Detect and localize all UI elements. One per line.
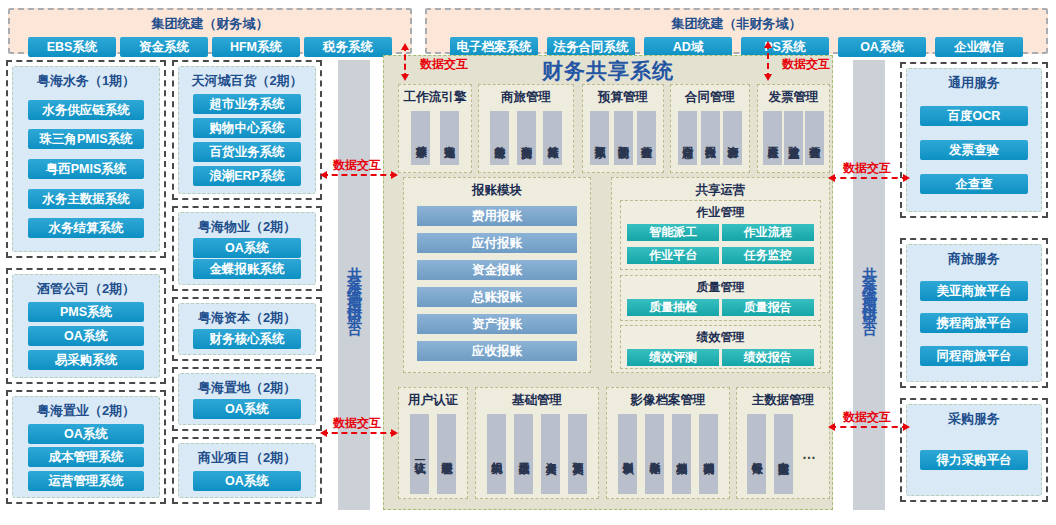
- operation-item: 质量报告: [722, 299, 814, 316]
- system-button: 成本管理系统: [28, 447, 145, 467]
- group-title: 商业项目（2期）: [198, 449, 296, 467]
- module-basic-mgmt: 基础管理 组织架构员工数据资金相关预算相关: [475, 387, 599, 499]
- module-title: 主数据管理: [737, 392, 829, 409]
- system-button: 美亚商旅平台: [920, 281, 1027, 301]
- group-hotel-company: 酒管公司（2期） PMS系统OA系统易采购系统: [6, 268, 166, 384]
- reimbursement-item: 应收报账: [417, 341, 577, 361]
- data-exchange-label: 数据交互: [782, 56, 830, 73]
- module-workflow-engine: 工作流引擎 待办事项审批通知: [398, 84, 472, 173]
- group-title: 采购服务: [948, 410, 1000, 428]
- group-yuehai-land: 粤海置地（2期） OA系统: [172, 367, 322, 431]
- system-button: 超市业务系统: [193, 94, 302, 114]
- system-button: OA系统: [28, 424, 145, 444]
- module-master-data-mgmt: 主数据管理 银行账号客商主数据…: [736, 387, 830, 499]
- group-teemall: 天河城百货（2期） 超市业务系统购物中心系统百货业务系统浪潮ERP系统: [172, 60, 322, 200]
- data-exchange-arrow-left-lower: [322, 432, 396, 434]
- subgroup-job-mgmt: 作业管理 智能派工作业流程作业平台任务监控: [620, 200, 821, 270]
- module-title: 工作流引擎: [399, 89, 471, 106]
- module-item: 影像识别: [618, 414, 637, 494]
- system-button: 得力采购平台: [920, 450, 1027, 470]
- system-button: 电子档案系统: [450, 37, 538, 57]
- module-items: 预算体系预算控制分析查询: [583, 106, 663, 172]
- system-button: 携程商旅平台: [920, 313, 1027, 333]
- group-title: 商旅服务: [948, 250, 1000, 268]
- module-item: 合同执行: [701, 111, 720, 165]
- interface-platform-bar-right: 共享系统通用接口平台: [853, 60, 885, 510]
- group-title: 酒管公司（2期）: [37, 280, 135, 298]
- system-button: 发票查验: [920, 140, 1027, 160]
- system-button: 粤西PMIS系统: [28, 159, 145, 179]
- module-contract-mgmt: 合同管理 合同信息合同执行查询分析: [670, 84, 750, 173]
- module-user-auth: 用户认证 统一认证权限管理: [398, 387, 468, 499]
- module-image-archive-mgmt: 影像档案管理 影像识别影像存储档案归档档案调阅: [606, 387, 730, 499]
- operation-item: 任务监控: [722, 247, 814, 264]
- group-inner: 商旅服务 美亚商旅平台携程商旅平台同程商旅平台: [906, 244, 1042, 382]
- system-list: PMS系统OA系统易采购系统: [13, 298, 159, 374]
- module-items: 待办事项审批通知: [399, 106, 471, 172]
- module-item: 分析查询: [637, 111, 656, 165]
- operation-item: 绩效报告: [722, 349, 814, 366]
- operation-item: 智能派工: [627, 224, 719, 241]
- interface-platform-bar-left: 共享系统通用接口平台: [338, 60, 370, 510]
- group-yuehai-pm: 粤海物业（2期） OA系统金蝶报账系统: [172, 206, 322, 291]
- data-exchange-label: 数据交互: [333, 157, 381, 174]
- system-button: HFM系统: [212, 37, 300, 57]
- system-list: 百度OCR发票查验企查查: [907, 92, 1041, 208]
- system-button: PMS系统: [28, 302, 145, 322]
- group-yuehai-water: 粤海水务（1期） 水务供应链系统珠三角PMIS系统粤西PMIS系统水务主数据系统…: [6, 60, 166, 258]
- group-commercial-project: 商业项目（2期） OA系统: [172, 437, 322, 504]
- module-item: 权限管理: [437, 414, 456, 494]
- module-item: 档案归档: [672, 414, 691, 494]
- module-title: 报账模块: [404, 182, 590, 199]
- system-button: EBS系统: [28, 37, 116, 57]
- module-travel-mgmt: 商旅管理 差旅申请商旅消费结算对账: [478, 84, 574, 173]
- module-title: 预算管理: [583, 89, 663, 106]
- system-button-row: 电子档案系统法务合同系统AD域PS系统OA系统企业微信: [427, 37, 1046, 57]
- system-list: 超市业务系统购物中心系统百货业务系统浪潮ERP系统: [179, 90, 315, 190]
- system-button: 易采购系统: [28, 350, 145, 370]
- module-item: 审批通知: [440, 111, 459, 165]
- system-button: 珠三角PMIS系统: [28, 129, 145, 149]
- subgroup-title: 绩效管理: [621, 329, 820, 346]
- system-button: 百度OCR: [920, 106, 1027, 126]
- group-inner: 采购服务 得力采购平台: [906, 404, 1042, 496]
- module-reimbursement: 报账模块 费用报账应付报账资金报账总账报账资产报账应收报账: [403, 177, 591, 373]
- system-button: 财务核心系统: [193, 329, 302, 349]
- data-exchange-arrow-top-right: [767, 43, 769, 79]
- module-item: 预算体系: [590, 111, 609, 165]
- data-exchange-label: 数据交互: [843, 160, 891, 177]
- group-inner: 粤海置业（2期） OA系统成本管理系统运营管理系统: [12, 396, 160, 498]
- system-button: 企查查: [920, 174, 1027, 194]
- system-button: 百货业务系统: [193, 142, 302, 162]
- module-item: 档案调阅: [699, 414, 718, 494]
- module-invoice-mgmt: 发票管理 发票台账验真查重分析查询: [757, 84, 830, 173]
- data-exchange-arrow-right-lower: [830, 426, 908, 428]
- panel-title: 集团统建（非财务域）: [427, 15, 1046, 33]
- panel-group-finance-domain: 集团统建（财务域） EBS系统资金系统HFM系统税务系统: [8, 8, 412, 54]
- module-item: 组织架构: [487, 414, 506, 494]
- group-inner: 通用服务 百度OCR发票查验企查查: [906, 68, 1042, 212]
- subgroup-items: 质量抽检质量报告: [621, 296, 820, 321]
- interface-platform-label: 共享系统通用接口平台: [860, 255, 879, 315]
- module-title: 发票管理: [758, 89, 829, 106]
- subgroup-title: 质量管理: [621, 279, 820, 296]
- group-yuehai-property-dev: 粤海置业（2期） OA系统成本管理系统运营管理系统: [6, 390, 166, 504]
- module-items: 组织架构员工数据资金相关预算相关: [476, 409, 598, 500]
- module-item: 统一认证: [410, 414, 429, 494]
- module-items: 差旅申请商旅消费结算对账: [479, 106, 573, 172]
- module-shared-operations: 共享运营 作业管理 智能派工作业流程作业平台任务监控 质量管理 质量抽检质量报告…: [611, 177, 830, 373]
- operation-item: 绩效评测: [627, 349, 719, 366]
- module-item: 合同信息: [678, 111, 697, 165]
- group-title: 粤海置地（2期）: [198, 379, 296, 397]
- module-item: …: [800, 446, 819, 462]
- operation-item: 作业平台: [627, 247, 719, 264]
- module-items: 费用报账应付报账资金报账总账报账资产报账应收报账: [404, 199, 590, 372]
- system-list: OA系统成本管理系统运营管理系统: [13, 420, 159, 494]
- system-button: OA系统: [838, 37, 926, 57]
- system-button: OA系统: [193, 238, 302, 258]
- module-item: 银行账号: [747, 414, 766, 494]
- module-title: 用户认证: [399, 392, 467, 409]
- module-item: 客商主数据: [774, 414, 793, 494]
- subgroup-items: 智能派工作业流程作业平台任务监控: [621, 221, 820, 269]
- module-item: 分析查询: [805, 111, 824, 165]
- subgroup-performance-mgmt: 绩效管理 绩效评测绩效报告: [620, 325, 821, 369]
- system-button: 水务主数据系统: [28, 189, 145, 209]
- system-button: 资金系统: [120, 37, 208, 57]
- subgroup-items: 绩效评测绩效报告: [621, 346, 820, 371]
- group-inner: 粤海资本（2期） 财务核心系统: [178, 303, 316, 355]
- group-procurement-services: 采购服务 得力采购平台: [900, 398, 1048, 502]
- subgroup-title: 作业管理: [621, 204, 820, 221]
- reimbursement-item: 资金报账: [417, 260, 577, 280]
- data-exchange-label: 数据交互: [843, 409, 891, 426]
- system-button-row: EBS系统资金系统HFM系统税务系统: [10, 37, 410, 57]
- module-title: 商旅管理: [479, 89, 573, 106]
- module-item: 待办事项: [411, 111, 430, 165]
- group-title: 粤海资本（2期）: [198, 309, 296, 327]
- reimbursement-item: 资产报账: [417, 314, 577, 334]
- module-item: 发票台账: [763, 111, 782, 165]
- module-item: 员工数据: [514, 414, 533, 494]
- group-general-services: 通用服务 百度OCR发票查验企查查: [900, 62, 1048, 218]
- system-list: 水务供应链系统珠三角PMIS系统粤西PMIS系统水务主数据系统水务结算系统: [13, 90, 159, 248]
- module-item: 资金相关: [541, 414, 560, 494]
- group-yuehai-capital: 粤海资本（2期） 财务核心系统: [172, 297, 322, 361]
- panel-title: 集团统建（财务域）: [10, 15, 410, 33]
- system-list: OA系统: [179, 397, 315, 421]
- group-inner: 商业项目（2期） OA系统: [178, 443, 316, 498]
- module-title: 影像档案管理: [607, 392, 729, 409]
- group-inner: 粤海置地（2期） OA系统: [178, 373, 316, 425]
- system-button: 水务供应链系统: [28, 100, 145, 120]
- module-item: 结算对账: [543, 111, 562, 165]
- system-list: OA系统金蝶报账系统: [179, 236, 315, 281]
- system-button: OA系统: [28, 326, 145, 346]
- system-list: 得力采购平台: [907, 428, 1041, 492]
- operation-item: 作业流程: [722, 224, 814, 241]
- interface-platform-label: 共享系统通用接口平台: [345, 255, 364, 315]
- group-title: 粤海置业（2期）: [37, 402, 135, 420]
- reimbursement-item: 总账报账: [417, 287, 577, 307]
- group-title: 天河城百货（2期）: [191, 72, 302, 90]
- system-button: OA系统: [193, 399, 302, 419]
- module-item: 预算控制: [614, 111, 633, 165]
- data-exchange-label: 数据交互: [420, 56, 468, 73]
- system-list: OA系统: [179, 467, 315, 494]
- group-title: 粤海物业（2期）: [198, 218, 296, 236]
- system-list: 美亚商旅平台携程商旅平台同程商旅平台: [907, 268, 1041, 378]
- module-items: 影像识别影像存储档案归档档案调阅: [607, 409, 729, 500]
- group-inner: 酒管公司（2期） PMS系统OA系统易采购系统: [12, 274, 160, 378]
- group-inner: 粤海水务（1期） 水务供应链系统珠三角PMIS系统粤西PMIS系统水务主数据系统…: [12, 66, 160, 252]
- module-items: 发票台账验真查重分析查询: [758, 106, 829, 172]
- module-item: 查询分析: [723, 111, 742, 165]
- system-button: 运营管理系统: [28, 471, 145, 491]
- system-button: PS系统: [741, 37, 829, 57]
- group-inner: 天河城百货（2期） 超市业务系统购物中心系统百货业务系统浪潮ERP系统: [178, 66, 316, 194]
- module-title: 合同管理: [671, 89, 749, 106]
- system-button: 同程商旅平台: [920, 346, 1027, 366]
- system-button: 购物中心系统: [193, 118, 302, 138]
- data-exchange-arrow-right-upper: [830, 177, 908, 179]
- system-list: 财务核心系统: [179, 327, 315, 351]
- reimbursement-item: 应付报账: [417, 233, 577, 253]
- architecture-diagram: 集团统建（财务域） EBS系统资金系统HFM系统税务系统 集团统建（非财务域） …: [0, 0, 1056, 525]
- system-button: 浪潮ERP系统: [193, 166, 302, 186]
- data-exchange-label: 数据交互: [333, 415, 381, 432]
- system-button: AD域: [644, 37, 732, 57]
- module-title: 基础管理: [476, 392, 598, 409]
- panel-group-nonfinance-domain: 集团统建（非财务域） 电子档案系统法务合同系统AD域PS系统OA系统企业微信: [425, 8, 1048, 54]
- module-item: 验真查重: [784, 111, 803, 165]
- group-travel-services: 商旅服务 美亚商旅平台携程商旅平台同程商旅平台: [900, 238, 1048, 388]
- group-title: 通用服务: [948, 74, 1000, 92]
- reimbursement-item: 费用报账: [417, 206, 577, 226]
- system-button: 法务合同系统: [547, 37, 635, 57]
- module-item: 差旅申请: [490, 111, 509, 165]
- module-items: 银行账号客商主数据…: [737, 409, 829, 500]
- module-items: 合同信息合同执行查询分析: [671, 106, 749, 172]
- operation-item: 质量抽检: [627, 299, 719, 316]
- module-items: 统一认证权限管理: [399, 409, 467, 500]
- group-title: 粤海水务（1期）: [37, 72, 135, 90]
- module-item: 影像存储: [645, 414, 664, 494]
- system-button: OA系统: [193, 471, 302, 491]
- system-button: 税务系统: [304, 37, 392, 57]
- group-inner: 粤海物业（2期） OA系统金蝶报账系统: [178, 212, 316, 285]
- data-exchange-arrow-left-upper: [322, 174, 396, 176]
- module-budget-mgmt: 预算管理 预算体系预算控制分析查询: [582, 84, 664, 173]
- subgroup-quality-mgmt: 质量管理 质量抽检质量报告: [620, 275, 821, 321]
- module-title: 共享运营: [612, 182, 829, 199]
- module-item: 商旅消费: [517, 111, 536, 165]
- system-button: 金蝶报账系统: [193, 259, 302, 279]
- system-button: 企业微信: [935, 37, 1023, 57]
- data-exchange-arrow-top-left: [404, 45, 406, 79]
- panel-financial-shared-system: 财务共享系统 工作流引擎 待办事项审批通知 商旅管理 差旅申请商旅消费结算对账 …: [383, 55, 833, 510]
- system-button: 水务结算系统: [28, 218, 145, 238]
- module-item: 预算相关: [568, 414, 587, 494]
